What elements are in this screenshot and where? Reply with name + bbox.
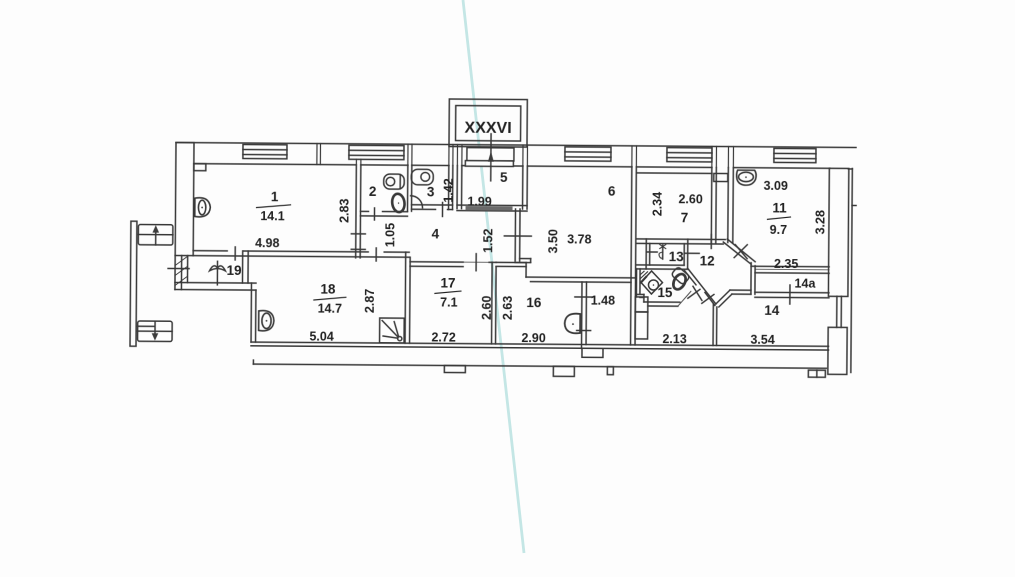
svg-text:14.1: 14.1 [260,209,284,223]
svg-text:1.52: 1.52 [481,229,495,253]
svg-text:3.54: 3.54 [750,333,774,347]
svg-text:12: 12 [700,253,715,268]
svg-text:16: 16 [526,295,542,310]
svg-text:3.09: 3.09 [763,179,787,193]
svg-text:11: 11 [772,200,787,215]
svg-text:6: 6 [608,184,616,199]
svg-text:15: 15 [657,285,673,300]
svg-text:17: 17 [440,275,455,290]
svg-text:1.48: 1.48 [591,294,615,308]
svg-text:3: 3 [427,184,435,199]
svg-text:14: 14 [764,303,780,318]
svg-text:3.28: 3.28 [813,210,827,234]
svg-text:1.05: 1.05 [383,223,397,247]
svg-text:19: 19 [227,263,242,278]
svg-text:3.50: 3.50 [546,229,560,253]
svg-text:1.42: 1.42 [442,178,456,202]
svg-text:1: 1 [271,189,279,204]
svg-text:2: 2 [369,184,377,199]
svg-text:4: 4 [432,226,440,241]
svg-text:5: 5 [500,170,508,185]
svg-text:1.99: 1.99 [467,195,491,209]
svg-text:14.7: 14.7 [318,302,342,316]
svg-text:4.98: 4.98 [255,236,279,250]
svg-text:5.04: 5.04 [309,329,333,343]
svg-text:18: 18 [320,282,336,297]
svg-text:2.35: 2.35 [774,257,798,271]
svg-text:2.72: 2.72 [431,330,455,344]
svg-text:2.34: 2.34 [650,192,664,216]
svg-text:7: 7 [681,210,689,225]
svg-text:14a: 14a [795,277,817,291]
svg-text:13: 13 [669,249,685,264]
svg-text:2.13: 2.13 [662,332,686,346]
svg-text:2.60: 2.60 [480,296,494,320]
svg-text:2.87: 2.87 [363,289,377,313]
svg-text:2.83: 2.83 [337,198,351,222]
svg-text:XXXVI: XXXVI [464,120,511,137]
svg-text:9.7: 9.7 [770,223,788,237]
svg-text:2.90: 2.90 [521,331,545,345]
svg-text:2.60: 2.60 [678,192,702,206]
svg-text:7.1: 7.1 [440,295,458,309]
svg-text:3.78: 3.78 [567,232,591,246]
svg-text:2.63: 2.63 [501,296,515,320]
